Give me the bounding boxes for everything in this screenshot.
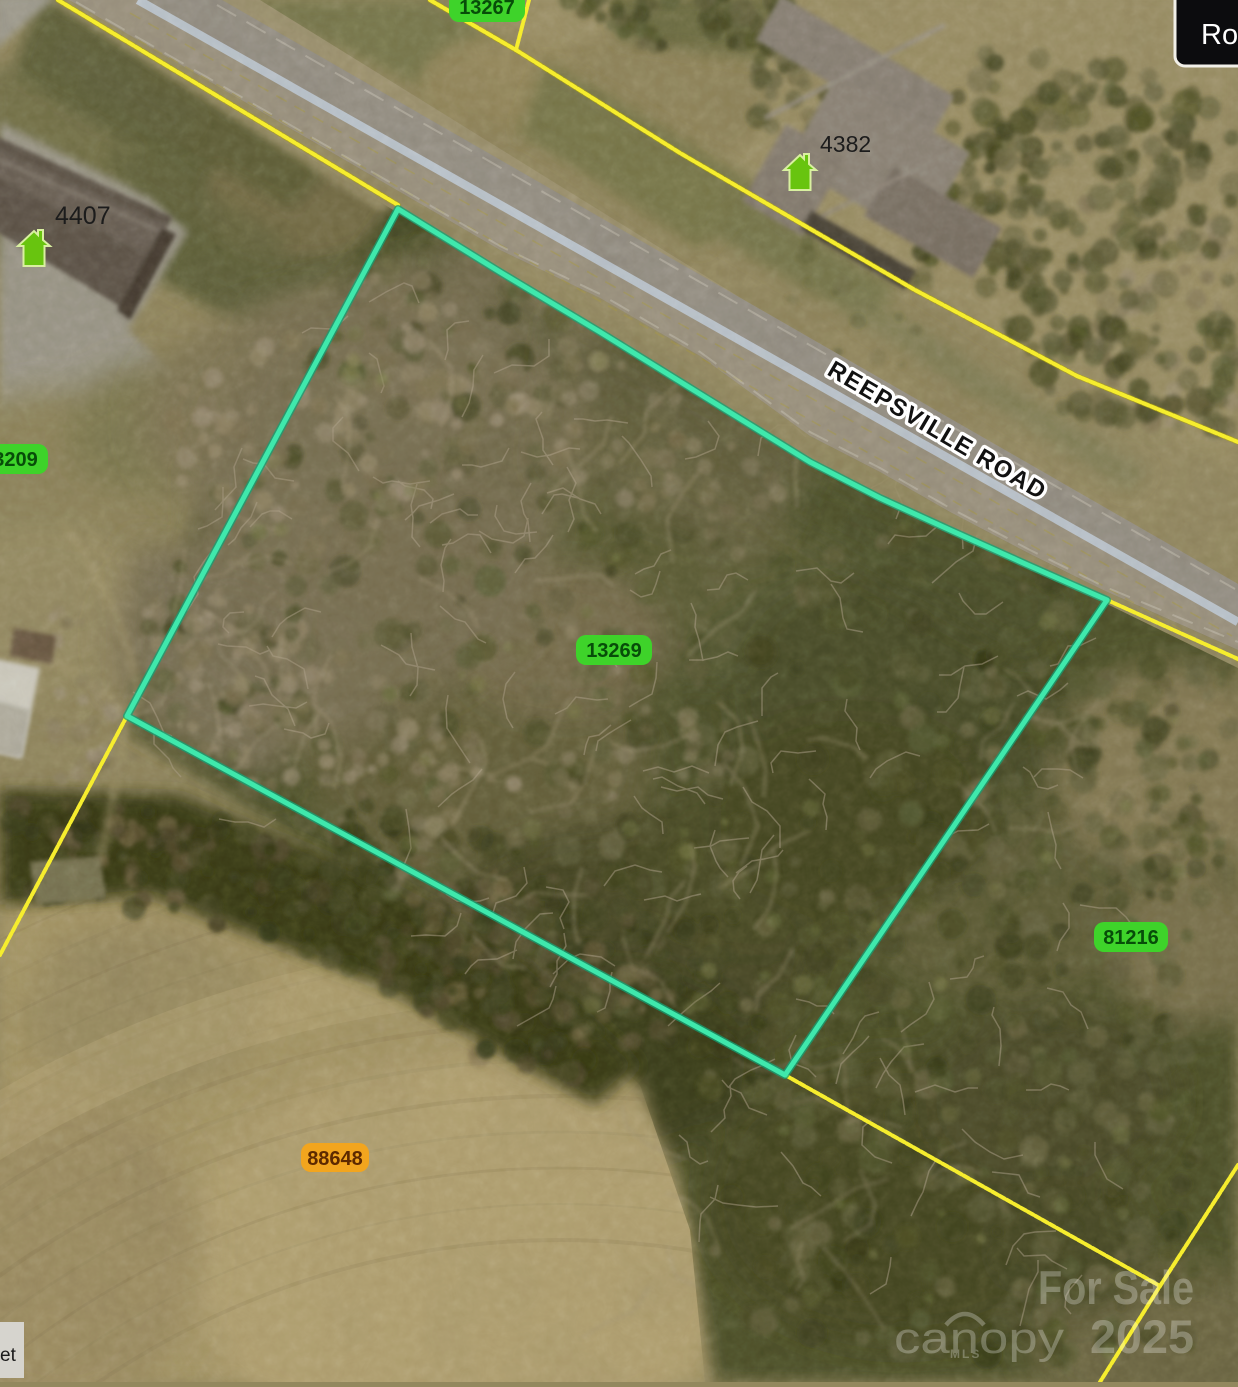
svg-text:13209: 13209 <box>0 449 38 471</box>
svg-text:et: et <box>0 1345 17 1366</box>
svg-text:88648: 88648 <box>307 1148 363 1170</box>
svg-text:For Sale: For Sale <box>1038 1261 1194 1314</box>
svg-text:13269: 13269 <box>586 640 642 662</box>
svg-text:Roa: Roa <box>1201 19 1238 51</box>
svg-text:81216: 81216 <box>1103 927 1159 949</box>
svg-text:2025: 2025 <box>1090 1310 1194 1363</box>
svg-text:13267: 13267 <box>459 0 515 19</box>
svg-text:4382: 4382 <box>820 131 871 157</box>
svg-text:4407: 4407 <box>55 202 111 230</box>
svg-text:MLS: MLS <box>950 1347 981 1361</box>
